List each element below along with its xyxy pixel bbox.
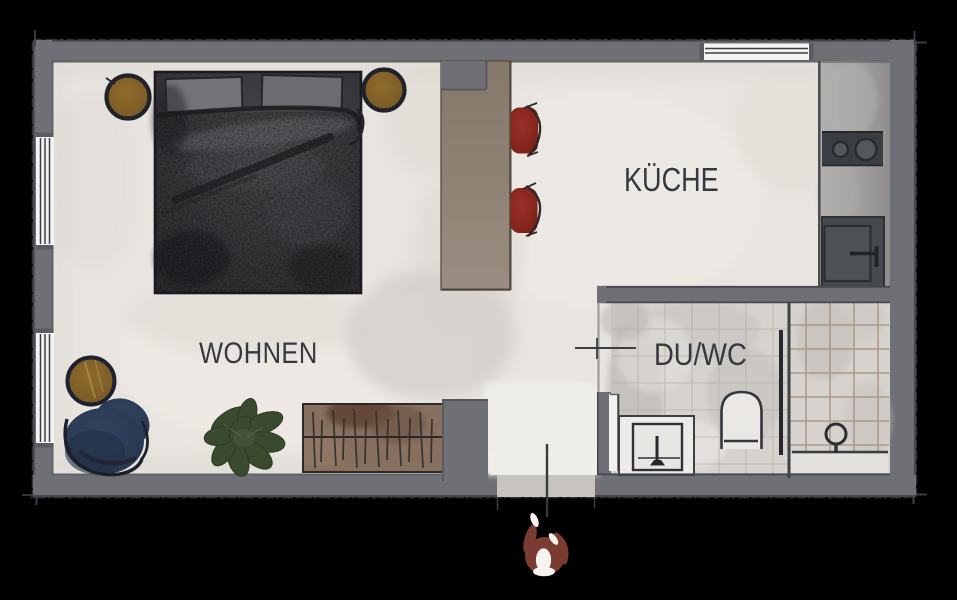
svg-text:DU/WC: DU/WC: [654, 337, 747, 372]
svg-text:KÜCHE: KÜCHE: [624, 163, 719, 199]
svg-text:WOHNEN: WOHNEN: [199, 336, 318, 369]
